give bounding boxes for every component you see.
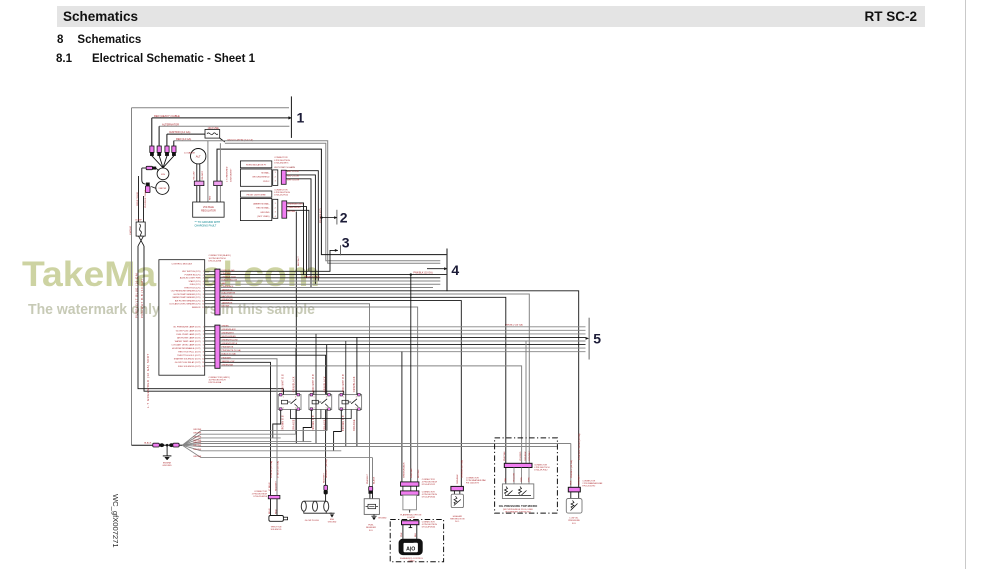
svg-text:RED/LT BLUE: RED/LT BLUE (137, 191, 139, 205)
svg-text:6: 6 (203, 287, 204, 289)
svg-text:1: 1 (203, 271, 204, 273)
svg-text:DRC16-40SB: DRC16-40SB (209, 260, 222, 262)
svg-text:THROTTLE PULL (OUT): THROTTLE PULL (OUT) (178, 352, 201, 354)
svg-text:PINK/WHITE (16 GA): PINK/WHITE (16 GA) (222, 349, 242, 352)
svg-text:PINK/WHITE: PINK/WHITE (222, 347, 234, 349)
svg-text:9: 9 (203, 297, 204, 299)
svg-text:2: 2 (283, 407, 284, 409)
svg-text:GRN/WHT: GRN/WHT (579, 474, 581, 485)
svg-text:RED SIGNAL,: RED SIGNAL, (256, 207, 270, 210)
svg-text:ORN/BLACK: ORN/BLACK (353, 376, 356, 392)
svg-text:8: 8 (203, 294, 204, 296)
svg-text:N.O.: N.O. (369, 530, 374, 532)
svg-text:NAVY/BLUE: NAVY/BLUE (222, 295, 234, 298)
svg-text:(GRN): (GRN) (408, 560, 414, 562)
svg-text:AUX/LED LIGHT PWR: AUX/LED LIGHT PWR (180, 277, 201, 280)
svg-text:LO-ATM: LO-ATM (407, 516, 415, 519)
svg-text:PNK: PNK (571, 480, 573, 485)
svg-text:3: 3 (326, 397, 327, 399)
svg-text:WHITE/GREEN: WHITE/GREEN (222, 336, 237, 338)
svg-text:PINK/BLACK: PINK/BLACK (222, 285, 234, 288)
svg-text:BLACK: BLACK (373, 476, 376, 484)
svg-text:GREEN/YELLOW: GREEN/YELLOW (222, 340, 238, 342)
svg-text:FRONT LIGHT WIRE: FRONT LIGHT WIRE (247, 194, 267, 196)
svg-text:RED COLOR: RED COLOR (287, 175, 299, 177)
svg-text:GRN/WHT: GRN/WHT (529, 450, 531, 461)
svg-text:RED (HEAVY) CABLE: RED (HEAVY) CABLE (154, 114, 180, 118)
svg-text:SIGNAL,: SIGNAL, (261, 171, 270, 174)
svg-text:PINK/WHT: PINK/WHT (222, 357, 233, 359)
svg-text:BLUE: BLUE (269, 508, 271, 514)
svg-text:12VDC: 12VDC (263, 181, 270, 183)
svg-text:CHARGING FAULT: CHARGING FAULT (195, 225, 217, 228)
svg-text:BROWN: BROWN (194, 429, 202, 431)
svg-text:FUSE (10 GA): FUSE (10 GA) (222, 269, 235, 272)
svg-text:9: 9 (203, 355, 204, 357)
svg-text:WHT COLOR: WHT COLOR (287, 179, 300, 181)
svg-text:YEL/RED: YEL/RED (520, 451, 522, 461)
svg-text:2: 2 (343, 407, 344, 409)
svg-text:GROUND: GROUND (260, 212, 270, 214)
svg-text:5: 5 (356, 407, 357, 409)
svg-text:TAN/YELLOW: TAN/YELLOW (222, 360, 235, 363)
svg-text:PNK/TAN: PNK/TAN (503, 451, 506, 461)
svg-text:KEYS SWITCH HARN: KEYS SWITCH HARN (274, 166, 295, 169)
svg-text:STARTER SOLENOID (OUT): STARTER SOLENOID (OUT) (174, 358, 201, 361)
svg-text:POWER IN (12V): POWER IN (12V) (185, 274, 201, 276)
svg-text:YELLOW: YELLOW (514, 472, 516, 482)
svg-text:HOUR METER ENABLE (OUT): HOUR METER ENABLE (OUT) (172, 347, 201, 350)
svg-text:STARTER: STARTER (159, 187, 168, 190)
svg-text:3: 3 (203, 278, 204, 280)
svg-text:BROWN: BROWN (194, 433, 202, 435)
svg-text:GLOW PLUG LAMP (OUT): GLOW PLUG LAMP (OUT) (176, 329, 201, 332)
svg-text:RED: RED (275, 509, 277, 514)
svg-text:3: 3 (295, 397, 296, 399)
svg-text:IGNITION/KEY: IGNITION/KEY (231, 168, 233, 182)
svg-text:ORN/BLK (16 GA): ORN/BLK (16 GA) (461, 460, 464, 478)
svg-text:GREEN/TAN: GREEN/TAN (222, 298, 234, 301)
svg-text:OIL PRESSURE TOP MICRO: OIL PRESSURE TOP MICRO (499, 504, 538, 508)
svg-text:10: 10 (202, 300, 204, 302)
svg-text:IGNITION (14 GA): IGNITION (14 GA) (169, 130, 190, 134)
svg-text:YELLOW: YELLOW (194, 172, 196, 180)
svg-text:BLACK/WHITE: BLACK/WHITE (222, 292, 236, 295)
svg-text:7: 7 (203, 348, 204, 350)
svg-text:ALT: ALT (196, 154, 201, 158)
svg-text:FUEL (12V): FUEL (12V) (190, 284, 201, 286)
svg-text:ORN/BLK T.B.B: ORN/BLK T.B.B (304, 276, 320, 278)
svg-text:15 AMP: 15 AMP (135, 219, 143, 222)
svg-text:RED/WHT (14 GA): RED/WHT (14 GA) (325, 459, 328, 478)
svg-text:ORN/BLACK: ORN/BLACK (323, 376, 326, 392)
svg-text:ORANGE: ORANGE (323, 419, 326, 431)
svg-text:CONNECTOR (BLACK): CONNECTOR (BLACK) (209, 254, 231, 257)
svg-text:OIL PRESSURE LAMP (OUT): OIL PRESSURE LAMP (OUT) (173, 326, 201, 329)
svg-text:GRN: GRN (529, 477, 531, 482)
svg-text:N.O.: N.O. (572, 523, 577, 525)
svg-text:10A MAX: 10A MAX (129, 225, 132, 235)
svg-text:BROWN B.B: BROWN B.B (282, 415, 284, 431)
svg-text:GROUND/SHIELD: GROUND/SHIELD (252, 177, 270, 179)
svg-text:KEY SWITCH (12V): KEY SWITCH (12V) (182, 271, 201, 273)
svg-text:DT04-4P-P012: DT04-4P-P012 (534, 469, 548, 471)
svg-text:BROWN: BROWN (194, 456, 202, 458)
svg-text:DT04-4P-E004: DT04-4P-E004 (422, 496, 436, 498)
svg-text:WC_gfX007271: WC_gfX007271 (111, 494, 120, 548)
svg-text:PNK/WHT B.B: PNK/WHT B.B (313, 374, 315, 392)
svg-text:START (12V): START (12V) (188, 280, 200, 283)
svg-text:ALTERNATOR: ALTERNATOR (162, 122, 179, 126)
svg-text:GROUND: GROUND (378, 517, 387, 519)
svg-text:5: 5 (203, 284, 204, 286)
svg-text:4: 4 (451, 262, 459, 278)
svg-text:LT BLUE (16 GA): LT BLUE (16 GA) (276, 461, 279, 478)
svg-text:1: 1 (343, 397, 344, 399)
svg-text:YEL/WHT: YEL/WHT (202, 170, 204, 180)
svg-text:GREEN/WHT: GREEN/WHT (222, 332, 235, 334)
svg-text:N.O.: N.O. (455, 521, 460, 523)
svg-text:WATER TEMP LAMP (OUT): WATER TEMP LAMP (OUT) (175, 340, 201, 343)
svg-text:TAN: TAN (222, 282, 226, 285)
svg-text:BROWN B.B: BROWN B.B (313, 415, 315, 431)
svg-text:PNK/WHT B.B: PNK/WHT B.B (343, 374, 345, 392)
svg-text:4: 4 (203, 281, 204, 283)
svg-text:HORN INDICATOR PT: HORN INDICATOR PT (246, 164, 267, 167)
svg-text:FUEL SOLENOID (OUT): FUEL SOLENOID (OUT) (178, 366, 201, 368)
svg-text:RED/WHT: RED/WHT (275, 480, 277, 491)
svg-text:5: 5 (593, 330, 601, 346)
svg-text:4: 4 (203, 337, 204, 339)
svg-text:BROWN: BROWN (222, 306, 230, 308)
svg-text:PNK/WHT: PNK/WHT (367, 473, 369, 484)
svg-text:5: 5 (326, 407, 327, 409)
svg-text:TAN/WHITE: TAN/WHITE (222, 288, 234, 291)
svg-text:REGULATOR: REGULATOR (201, 209, 216, 212)
svg-text:RED (14 GA): RED (14 GA) (176, 137, 191, 141)
svg-text:ORANGE: ORANGE (353, 419, 356, 431)
svg-text:1: 1 (283, 397, 284, 399)
svg-text:ORN/BLK: ORN/BLK (525, 451, 527, 461)
svg-text:5: 5 (295, 407, 296, 409)
svg-text:GROUND: GROUND (328, 522, 337, 524)
svg-text:BLK/WHT: BLK/WHT (298, 256, 300, 266)
svg-text:GLOW TEMP SENDER (12V): GLOW TEMP SENDER (12V) (173, 294, 200, 296)
svg-text:P/N 12010973: P/N 12010973 (466, 483, 480, 485)
svg-text:CONTROL MODULE: CONTROL MODULE (172, 263, 193, 265)
svg-text:GREEN/BROWN: GREEN/BROWN (287, 203, 303, 205)
svg-text:6: 6 (203, 344, 204, 346)
svg-text:7: 7 (203, 291, 204, 293)
svg-text:COOLANT LEVEL SENDER (12V): COOLANT LEVEL SENDER (12V) (169, 303, 201, 306)
svg-text:BROWN: BROWN (194, 445, 202, 447)
svg-text:DT04-4P-P012: DT04-4P-P012 (422, 484, 436, 486)
svg-text:DT06-2S-P012: DT06-2S-P012 (274, 195, 289, 197)
svg-text:GREEN/BLACK: GREEN/BLACK (402, 462, 405, 478)
svg-text:2: 2 (203, 330, 204, 332)
svg-text:PURPLE/LT BLUE: PURPLE/LT BLUE (145, 189, 147, 208)
svg-text:RED: RED (210, 195, 212, 200)
svg-text:12: 12 (202, 307, 204, 309)
svg-text:SENSOR: SENSOR (192, 307, 201, 309)
svg-text:ORANGE: ORANGE (293, 419, 296, 431)
svg-text:P/N 12015792: P/N 12015792 (582, 485, 596, 487)
svg-text:L.T GREEN/RED: L.T GREEN/RED (227, 166, 229, 182)
svg-text:2: 2 (203, 274, 204, 276)
svg-text:TAN/WHITE: TAN/WHITE (222, 301, 234, 304)
svg-text:PURPLE/LT BLUE (16 GA): PURPLE/LT BLUE (16 GA) (134, 272, 138, 318)
svg-text:DT04-4P-E004: DT04-4P-E004 (422, 527, 436, 529)
svg-text:12: 12 (202, 366, 204, 368)
svg-text:3: 3 (342, 234, 350, 250)
svg-text:GREEN/TAN: GREEN/TAN (222, 363, 234, 366)
svg-text:IGN: IGN (161, 174, 165, 176)
svg-text:GROUND: GROUND (162, 465, 172, 467)
svg-text:GREEN: GREEN (222, 325, 230, 327)
svg-text:GREEN/BLACK: GREEN/BLACK (222, 328, 237, 331)
svg-text:10: 10 (202, 359, 204, 361)
svg-text:PURPLE (16 GA): PURPLE (16 GA) (270, 461, 273, 478)
svg-text:OIL PRESSURE SENDER (12V): OIL PRESSURE SENDER (12V) (171, 291, 201, 293)
svg-text:BROWN B.B: BROWN B.B (343, 415, 345, 431)
svg-text:BLACK/YELLOW: BLACK/YELLOW (222, 279, 238, 282)
svg-text:AIR FILTER LAMP (OUT): AIR FILTER LAMP (OUT) (177, 336, 201, 339)
svg-text:PNK/TAN: PNK/TAN (410, 468, 413, 478)
svg-text:DT06-6S(GRY): DT06-6S(GRY) (274, 162, 288, 164)
svg-text:ORN: ORN (521, 477, 523, 482)
svg-text:BROWN: BROWN (194, 449, 202, 451)
svg-text:PINK/WHT: PINK/WHT (222, 273, 233, 275)
svg-text:11: 11 (202, 304, 204, 306)
svg-text:PNK/BLU (16 GA): PNK/BLU (16 GA) (505, 323, 523, 326)
svg-text:1: 1 (203, 327, 204, 329)
svg-text:THROTTLE (12V): THROTTLE (12V) (184, 287, 201, 289)
svg-text:ORN/BLACK: ORN/BLACK (293, 376, 296, 392)
svg-text:BROWN: BROWN (287, 211, 295, 213)
svg-text:PNK/BLU (16 GA): PNK/BLU (16 GA) (570, 460, 573, 478)
svg-text:14 GAUGE: 14 GAUGE (184, 152, 195, 155)
svg-text:BROWN: BROWN (194, 436, 202, 438)
svg-text:(NOT USED): (NOT USED) (257, 216, 269, 218)
svg-text:5: 5 (203, 341, 204, 343)
svg-text:ORANGE/RED: ORANGE/RED (287, 206, 301, 209)
svg-text:ORN/BLK T.B.B: ORN/BLK T.B.B (222, 276, 237, 278)
svg-text:ORN/BLK: ORN/BLK (457, 474, 459, 484)
svg-text:P/N 0904-0275: P/N 0904-0275 (320, 208, 322, 223)
svg-text:DRC16-40SA: DRC16-40SA (209, 381, 222, 384)
svg-text:8: 8 (203, 352, 204, 354)
svg-text:GREEN/PURPLE: GREEN/PURPLE (222, 343, 238, 345)
svg-text:BROWN: BROWN (418, 469, 420, 478)
svg-text:1: 1 (314, 397, 315, 399)
svg-text:LT BLUE: LT BLUE (269, 482, 271, 491)
svg-text:AMP COLOR: AMP COLOR (287, 170, 300, 173)
svg-text:HIGH AIR: HIGH AIR (453, 515, 463, 518)
svg-text:FUEL PUMP LAMP (OUT): FUEL PUMP LAMP (OUT) (177, 333, 201, 336)
svg-text:PNK: PNK (401, 532, 403, 537)
svg-text:GLOW PLUGS: GLOW PLUGS (305, 520, 320, 522)
svg-text:SOLENOID: SOLENOID (271, 529, 282, 531)
svg-text:THROTTLE HOLD (OUT): THROTTLE HOLD (OUT) (177, 355, 201, 357)
svg-text:TAN: TAN (504, 477, 507, 482)
svg-text:PNK/WHT B.B (16 GA): PNK/WHT B.B (16 GA) (140, 279, 144, 318)
svg-text:L.T GREEN/RED (16 GA) SORT: L.T GREEN/RED (16 GA) SORT (146, 353, 150, 408)
svg-text:W/ STRAIGHT TOP MICRO): W/ STRAIGHT TOP MICRO) (505, 510, 531, 513)
svg-text:A|O: A|O (406, 547, 415, 553)
svg-text:BLK: BLK (415, 532, 417, 537)
svg-text:PURPLE/LT BLUE (16 GA): PURPLE/LT BLUE (16 GA) (578, 433, 581, 460)
svg-text:2: 2 (314, 407, 315, 409)
svg-text:1: 1 (297, 109, 305, 125)
svg-text:BLACK (16 GA): BLACK (16 GA) (222, 353, 236, 356)
svg-text:BLACK: BLACK (144, 442, 152, 445)
svg-text:GLOW PLUG RELAY (OUT): GLOW PLUG RELAY (OUT) (175, 361, 201, 364)
svg-text:COOLANT LEVEL LAMP (OUT): COOLANT LEVEL LAMP (OUT) (171, 343, 200, 346)
svg-text:11: 11 (202, 362, 204, 364)
svg-text:3: 3 (356, 397, 357, 399)
svg-text:BROWN: BROWN (194, 442, 202, 444)
svg-text:WATER TEMP SENDER (12V): WATER TEMP SENDER (12V) (172, 296, 200, 299)
svg-text:10A FUSE: 10A FUSE (208, 127, 220, 130)
svg-text:DT06-2S-EP06: DT06-2S-EP06 (253, 496, 267, 498)
svg-text:AIR FILTER SENDER (12V): AIR FILTER SENDER (12V) (175, 299, 201, 302)
svg-text:2: 2 (340, 209, 348, 225)
svg-text:AMBER SIGNAL,: AMBER SIGNAL, (253, 202, 270, 205)
svg-text:3: 3 (203, 334, 204, 336)
